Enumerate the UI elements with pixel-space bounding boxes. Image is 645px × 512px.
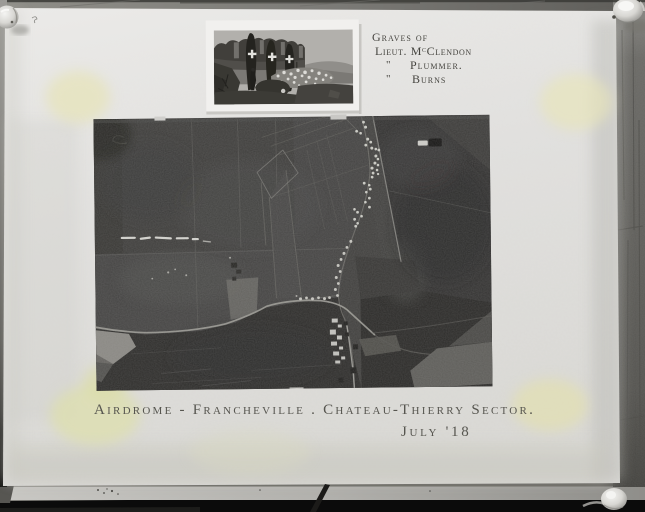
svg-text:": " xyxy=(386,73,391,85)
svg-text:Plummer.: Plummer. xyxy=(410,58,463,72)
svg-text:Airdrome - Francheville . Cha: Airdrome - Francheville . Chateau-Thierr… xyxy=(94,402,535,418)
svg-text:": " xyxy=(386,59,391,71)
svg-text:Burns: Burns xyxy=(412,72,446,86)
svg-text:July '18: July '18 xyxy=(401,424,471,440)
svg-text:Graves of: Graves of xyxy=(372,30,428,44)
